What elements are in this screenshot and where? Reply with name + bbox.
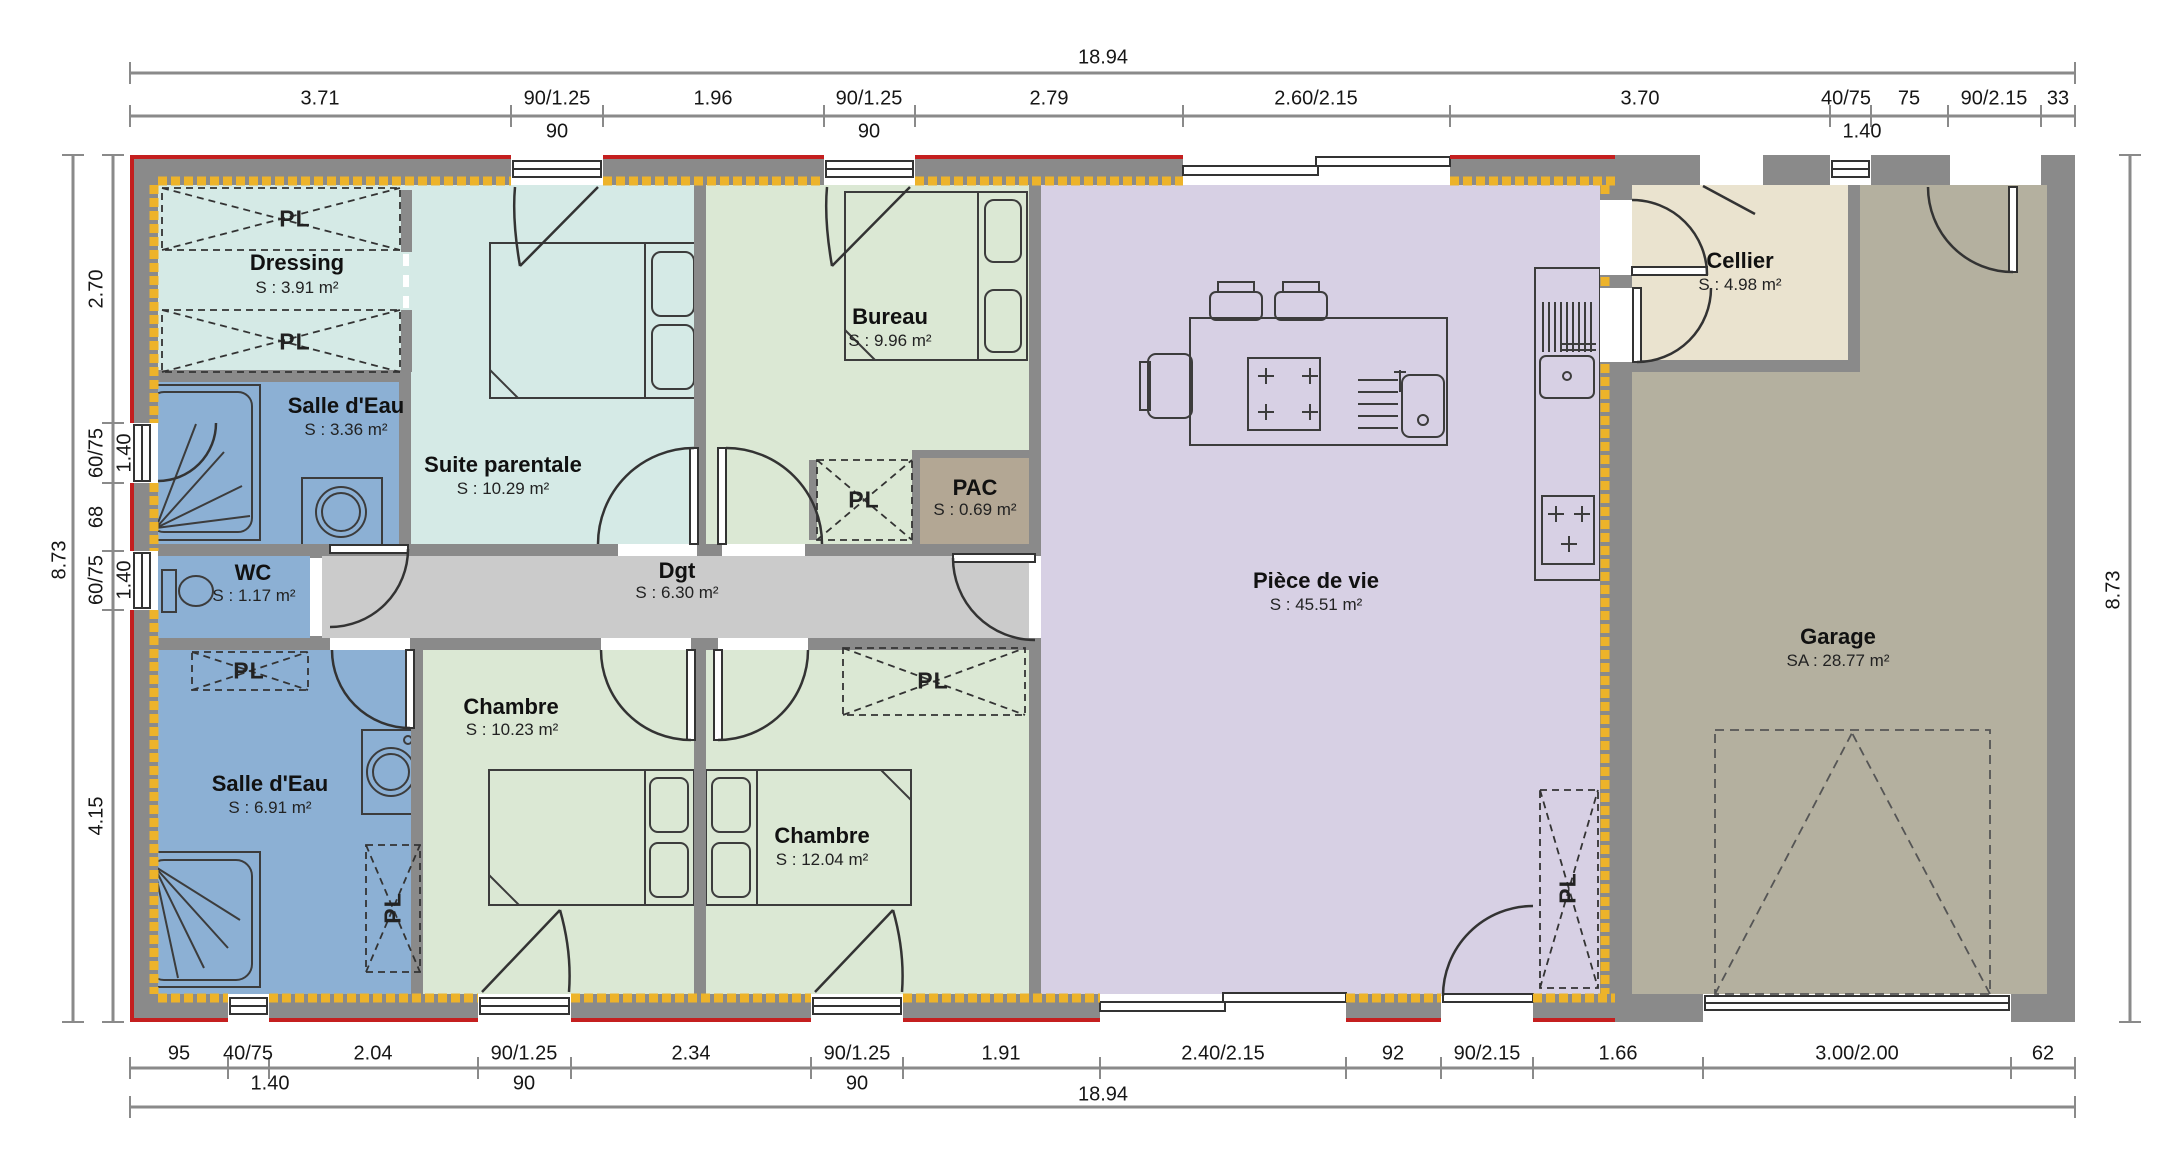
wall-pac-top [912,450,1029,458]
room-label-chambre-2: Chambre [774,823,869,849]
dim-top-1: 3.71 [301,88,340,111]
dim-bottom-1: 95 [168,1043,190,1066]
room-label-suite-parentale: Suite parentale [424,452,582,478]
dim-left-2: 60/75 [86,428,109,478]
dim-bottom-sub-2: 90 [513,1073,535,1096]
dim-right-overall: 8.73 [2103,571,2126,610]
room-area-degagement: S : 6.30 m² [635,583,718,603]
closet-label-chambre-1: PL [380,892,407,923]
room-label-piece-de-vie: Pièce de vie [1253,568,1379,594]
wall-cellier-bottom [1632,360,1860,372]
dim-top-2: 90/1.25 [524,88,591,111]
dim-top-10: 90/2.15 [1961,88,2028,111]
dim-bottom-sub-1: 1.40 [251,1073,290,1096]
wall-exterior-right [2047,155,2075,1022]
room-label-degagement: Dgt [659,558,696,584]
floor-chambre-2 [706,650,1029,994]
garage-door [1705,996,2009,1010]
dim-bottom-10: 90/2.15 [1454,1043,1521,1066]
room-area-piece-de-vie: S : 45.51 m² [1270,595,1363,615]
wall-chambre2-pdv [1029,638,1041,994]
dim-bottom-8: 2.40/2.15 [1181,1043,1264,1066]
room-area-salle-eau-2: S : 6.91 m² [228,798,311,818]
wall-bureau-pdv [1029,185,1041,556]
dim-top-overall: 18.94 [1078,47,1128,70]
dim-bottom-3: 2.04 [354,1043,393,1066]
dim-top-6: 2.60/2.15 [1274,88,1357,111]
room-floors [158,185,2047,994]
floor-garage-right [1860,185,2047,994]
dim-left-sub-2: 1.40 [114,561,137,600]
dim-bottom-sub-3: 90 [846,1073,868,1096]
dim-bottom-7: 1.91 [982,1043,1021,1066]
dim-bottom-12: 3.00/2.00 [1815,1043,1898,1066]
room-label-salle-eau-1: Salle d'Eau [288,393,405,419]
room-area-chambre-1: S : 10.23 m² [466,720,559,740]
dim-bottom-13: 62 [2032,1043,2054,1066]
closet-label-corridor: PL [848,487,879,514]
dim-bottom-4: 90/1.25 [491,1043,558,1066]
room-label-salle-eau-2: Salle d'Eau [212,771,329,797]
wall-cellier-right [1848,155,1860,372]
room-area-dressing: S : 3.91 m² [255,278,338,298]
closet-label-dressing-bottom: PL [279,329,310,356]
room-label-dressing: Dressing [250,250,344,276]
dim-top-7: 3.70 [1621,88,1660,111]
dim-bottom-2: 40/75 [223,1043,273,1066]
room-label-cellier: Cellier [1706,248,1773,274]
wall-corridor-top [158,544,1041,556]
dim-bottom-5: 2.34 [672,1043,711,1066]
wall-pac-left [912,450,920,544]
floor-salle-eau-2 [158,650,411,994]
dim-left-sub-1: 1.40 [114,434,137,473]
dim-bottom-overall: 18.94 [1078,1084,1128,1107]
room-area-garage: SA : 28.77 m² [1787,651,1890,671]
dim-top-3: 1.96 [694,88,733,111]
room-area-bureau: S : 9.96 m² [848,331,931,351]
closet-label-chambre-2: PL [917,668,948,695]
room-label-wc: WC [235,560,272,586]
room-area-cellier: S : 4.98 m² [1698,275,1781,295]
floor-plan-page: Dressing S : 3.91 m² Salle d'Eau S : 3.3… [0,0,2183,1162]
floor-plan-drawing [0,0,2183,1162]
closet-label-salle-eau-2: PL [233,658,264,685]
room-label-chambre-1: Chambre [463,694,558,720]
closet-label-dressing-top: PL [279,206,310,233]
wall-stub-pl-top [401,190,412,252]
dim-left-5: 4.15 [86,797,109,836]
dim-left-overall: 8.73 [49,541,72,580]
room-area-suite-parentale: S : 10.29 m² [457,479,550,499]
dim-bottom-9: 92 [1382,1043,1404,1066]
dim-top-8: 40/75 [1821,88,1871,111]
dim-top-sub-1: 90 [546,121,568,144]
closet-label-piece-de-vie: PL [1555,872,1582,903]
room-label-pac: PAC [953,475,998,501]
dim-top-sub-3: 1.40 [1843,121,1882,144]
room-area-chambre-2: S : 12.04 m² [776,850,869,870]
floor-garage-main [1632,372,1860,994]
room-area-pac: S : 0.69 m² [933,500,1016,520]
wall-stub-pl-bottom [401,310,412,372]
dim-left-1: 2.70 [86,270,109,309]
dim-top-4: 90/1.25 [836,88,903,111]
dim-bottom-6: 90/1.25 [824,1043,891,1066]
dim-bottom-11: 1.66 [1599,1043,1638,1066]
dim-top-5: 2.79 [1030,88,1069,111]
dim-top-9: 75 [1898,88,1920,111]
room-area-wc: S : 1.17 m² [212,586,295,606]
room-label-bureau: Bureau [852,304,928,330]
dim-left-4: 60/75 [86,555,109,605]
dim-top-11: 33 [2047,88,2069,111]
room-label-garage: Garage [1800,624,1876,650]
dim-left-3: 68 [86,506,109,528]
room-area-salle-eau-1: S : 3.36 m² [304,420,387,440]
dim-top-sub-2: 90 [858,121,880,144]
